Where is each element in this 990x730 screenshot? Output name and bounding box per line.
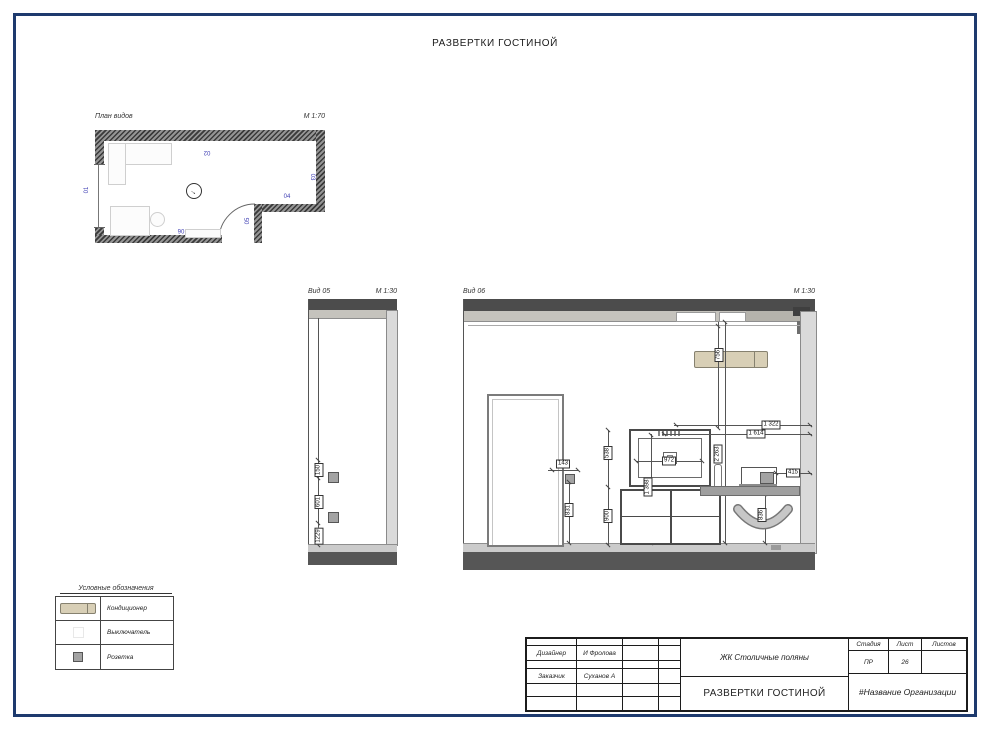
sheets-total — [922, 651, 966, 674]
tv-cabinet — [620, 489, 721, 545]
tb-cell — [659, 669, 681, 684]
view06-floor-section — [463, 552, 815, 570]
tb-cell — [577, 697, 623, 710]
tb-cell — [623, 639, 659, 646]
view-origin-marker: → — [186, 183, 202, 199]
view06-cornice-recess — [676, 312, 716, 322]
tb-cell — [659, 684, 681, 697]
title-block-right: Стадия Лист Листов ПР 26 #Название Орган… — [849, 639, 966, 710]
tb-cell — [577, 684, 623, 697]
view05-left-edge — [308, 299, 309, 562]
view-marker-02: 02 — [204, 149, 211, 155]
tb-cell — [623, 669, 659, 684]
dimension-label: 756 — [715, 348, 724, 362]
view06-label: Вид 06 — [463, 288, 485, 295]
air-conditioner-panel-line — [754, 352, 755, 367]
legend-label: Выключатель — [101, 629, 150, 636]
dim-line — [725, 322, 726, 543]
dim-line — [718, 322, 719, 428]
drawing-sheet: РАЗВЕРТКИ ГОСТИНОЙ План видов М 1:70 → 0… — [0, 0, 990, 730]
dimension-label: 900 — [604, 509, 613, 523]
tb-cell — [623, 697, 659, 710]
plan-window — [94, 164, 105, 228]
title-block: Дизайнер И Фролова Заказчик Суханов А ЖК… — [525, 637, 968, 712]
legend-label-cell: Кондиционер — [101, 597, 173, 621]
view05-side-wall-section — [386, 310, 398, 546]
plan-wall-step-horizontal — [262, 204, 325, 212]
plan-wall-right — [316, 130, 325, 212]
plan-sofa-side-outline — [108, 143, 126, 185]
page-title: РАЗВЕРТКИ ГОСТИНОЙ — [0, 38, 990, 49]
dimension-label: 2 263 — [714, 444, 723, 463]
dimension-label: 143 — [556, 460, 570, 469]
tb-cell — [659, 697, 681, 710]
project-name: ЖК Столичные поляны — [681, 639, 848, 677]
air-conditioner — [694, 351, 768, 368]
view-marker-01: 01 — [84, 187, 90, 194]
view05-scale: М 1:30 — [357, 288, 397, 295]
view-origin-arrow-icon: → — [188, 185, 200, 197]
view-marker-04: 04 — [284, 194, 291, 200]
tb-cell — [623, 646, 659, 661]
view-marker-06: 06 — [178, 227, 185, 233]
dimension-label: 1 322 — [761, 421, 780, 430]
plan-label: План видов — [95, 113, 133, 120]
plan-tv-bench-outline — [185, 229, 221, 238]
tb-cell — [527, 697, 577, 710]
dimension-label: 538 — [604, 446, 613, 460]
client-value: Суханов А — [577, 669, 623, 684]
switch-icon — [73, 627, 84, 638]
tb-cell — [577, 639, 623, 646]
organization-name: #Название Организации — [849, 674, 966, 710]
client-label: Заказчик — [527, 669, 577, 684]
plan-door-swing-arc — [217, 202, 257, 244]
view06-cornice-segment — [746, 311, 800, 321]
view05-floor-section — [308, 552, 397, 565]
legend-symbol-cell — [56, 645, 101, 669]
legend-title: Условные обозначения — [60, 585, 172, 594]
plan-chair-outline — [150, 212, 165, 227]
title-block-center: ЖК Столичные поляны РАЗВЕРТКИ ГОСТИНОЙ — [681, 639, 849, 710]
legend-table: Кондиционер Выключатель Розетка — [55, 596, 174, 670]
tb-cell — [577, 661, 623, 669]
dimension-label: 972 — [662, 457, 676, 466]
view06-scale: М 1:30 — [775, 288, 815, 295]
dimension-label: 1229 — [315, 527, 324, 544]
air-conditioner-icon-line — [87, 604, 88, 613]
legend-symbol-cell — [56, 621, 101, 645]
view06-ceiling-section — [463, 299, 815, 311]
dimension-label: 831 — [565, 503, 574, 517]
tb-cell — [659, 646, 681, 661]
view-marker-05: 05 — [245, 218, 251, 225]
dimension-label: 415 — [786, 469, 800, 478]
legend-label: Кондиционер — [101, 605, 147, 612]
view05-dim-line — [318, 318, 319, 545]
tb-cell — [527, 661, 577, 669]
dim-line — [674, 425, 812, 426]
sheet-title: РАЗВЕРТКИ ГОСТИНОЙ — [681, 677, 848, 710]
title-block-signatures: Дизайнер И Фролова Заказчик Суханов А — [527, 639, 681, 710]
sheet-number: 26 — [889, 651, 922, 674]
dimension-label: 601 — [315, 495, 324, 509]
view05-label: Вид 05 — [308, 288, 330, 295]
designer-value: И Фролова — [577, 646, 623, 661]
switch-symbol — [328, 472, 339, 483]
dimension-label: 836 — [758, 508, 767, 522]
sheet-label: Лист — [889, 639, 922, 651]
view06-floor-object — [771, 545, 781, 550]
dimension-label: 1 398 — [644, 477, 653, 496]
tb-cell — [659, 639, 681, 646]
tb-cell — [527, 639, 577, 646]
cabinet-drawer-line — [622, 516, 719, 517]
view06-curtain-rod-line — [468, 325, 808, 326]
dimension-label: 1 614 — [746, 430, 765, 439]
legend-label: Розетка — [101, 654, 133, 661]
tb-cell — [623, 684, 659, 697]
stage-value: ПР — [849, 651, 889, 674]
legend-label-cell: Выключатель — [101, 621, 173, 645]
plan-scale: М 1:70 — [280, 113, 325, 120]
socket-icon — [73, 652, 83, 662]
socket-symbol — [760, 472, 774, 484]
socket-symbol — [328, 512, 339, 523]
view06-left-edge — [463, 299, 464, 570]
view05-ceiling-section — [308, 299, 397, 310]
tb-cell — [623, 661, 659, 669]
door-panel-line — [492, 399, 559, 545]
dimension-label: 150 — [315, 463, 324, 477]
air-conditioner-icon — [60, 603, 96, 614]
sheets-label: Листов — [922, 639, 966, 651]
view-marker-03: 03 — [309, 174, 315, 181]
view05-ceiling-cornice — [308, 310, 397, 319]
legend-symbol-cell — [56, 597, 101, 621]
desk-top — [700, 486, 800, 496]
stage-value-row: ПР 26 — [849, 651, 966, 674]
designer-label: Дизайнер — [527, 646, 577, 661]
tb-cell — [527, 684, 577, 697]
dim-line — [662, 434, 812, 435]
plan-desk-outline — [110, 206, 150, 236]
plan-wall-top — [95, 130, 325, 141]
tb-cell — [659, 661, 681, 669]
stage-header-row: Стадия Лист Листов — [849, 639, 966, 651]
legend-label-cell: Розетка — [101, 645, 173, 669]
cabinet-divider — [670, 491, 672, 543]
stage-label: Стадия — [849, 639, 889, 651]
